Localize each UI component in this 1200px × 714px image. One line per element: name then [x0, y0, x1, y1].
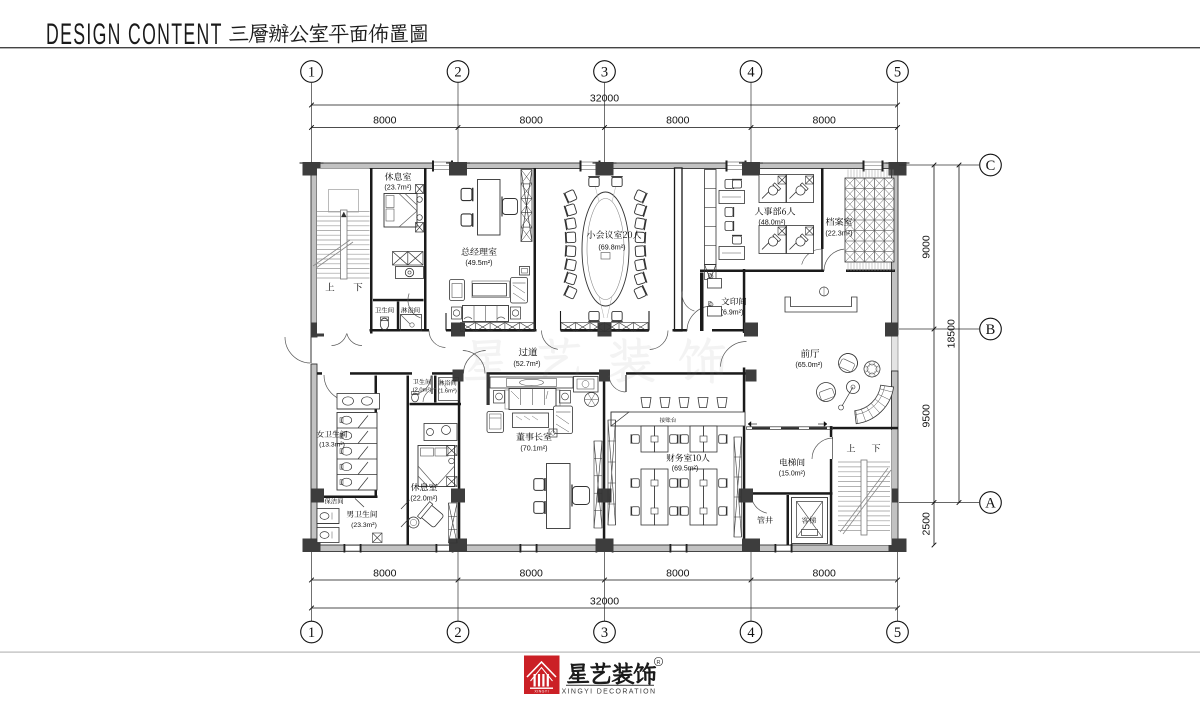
svg-text:3: 3: [601, 65, 608, 81]
svg-text:8000: 8000: [813, 115, 837, 127]
svg-text:3: 3: [601, 625, 608, 641]
svg-text:R: R: [657, 660, 661, 666]
svg-text:(70.1m²): (70.1m²): [520, 444, 547, 453]
svg-text:9000: 9000: [921, 235, 933, 259]
svg-text:(15.0m²): (15.0m²): [779, 471, 805, 478]
svg-text:4: 4: [747, 625, 755, 641]
svg-text:(2.0m²): (2.0m²): [413, 388, 432, 394]
svg-text:(52.7m²): (52.7m²): [513, 359, 540, 368]
svg-text:B: B: [986, 322, 996, 338]
svg-text:1: 1: [308, 625, 315, 641]
svg-text:2: 2: [454, 65, 461, 81]
svg-text:(49.5m²): (49.5m²): [465, 258, 492, 267]
svg-text:(22.3m²): (22.3m²): [825, 229, 852, 238]
svg-text:8000: 8000: [666, 568, 690, 580]
svg-text:(22.0m²): (22.0m²): [410, 494, 437, 503]
svg-text:8000: 8000: [666, 115, 690, 127]
svg-text:(1.6m²): (1.6m²): [438, 389, 457, 395]
svg-text:8000: 8000: [813, 568, 837, 580]
svg-text:C: C: [986, 158, 996, 174]
svg-text:(23.7m²): (23.7m²): [384, 183, 411, 192]
svg-text:8000: 8000: [373, 115, 397, 127]
svg-text:4: 4: [747, 65, 755, 81]
svg-text:(69.8m²): (69.8m²): [598, 243, 625, 252]
svg-text:A: A: [985, 496, 996, 512]
svg-text:2500: 2500: [921, 512, 933, 536]
svg-text:8000: 8000: [373, 568, 397, 580]
svg-text:DESIGN CONTENT: DESIGN CONTENT: [46, 19, 223, 52]
svg-text:8000: 8000: [520, 115, 544, 127]
svg-text:5: 5: [894, 65, 901, 81]
svg-text:1: 1: [308, 65, 315, 81]
svg-text:2: 2: [454, 625, 461, 641]
svg-text:XINGYI DECORATION: XINGYI DECORATION: [562, 689, 657, 696]
svg-text:32000: 32000: [590, 93, 619, 105]
svg-text:XINGYI: XINGYI: [534, 690, 549, 694]
svg-text:(6.9m²): (6.9m²): [721, 310, 744, 317]
svg-text:(13.3m²): (13.3m²): [319, 442, 345, 449]
svg-text:5: 5: [894, 625, 901, 641]
svg-text:(69.5m²): (69.5m²): [672, 466, 698, 473]
svg-text:(65.0m²): (65.0m²): [795, 360, 822, 369]
svg-text:18500: 18500: [946, 319, 958, 348]
svg-text:8000: 8000: [520, 568, 544, 580]
svg-text:9500: 9500: [921, 404, 933, 428]
svg-text:(23.3m²): (23.3m²): [351, 522, 377, 529]
